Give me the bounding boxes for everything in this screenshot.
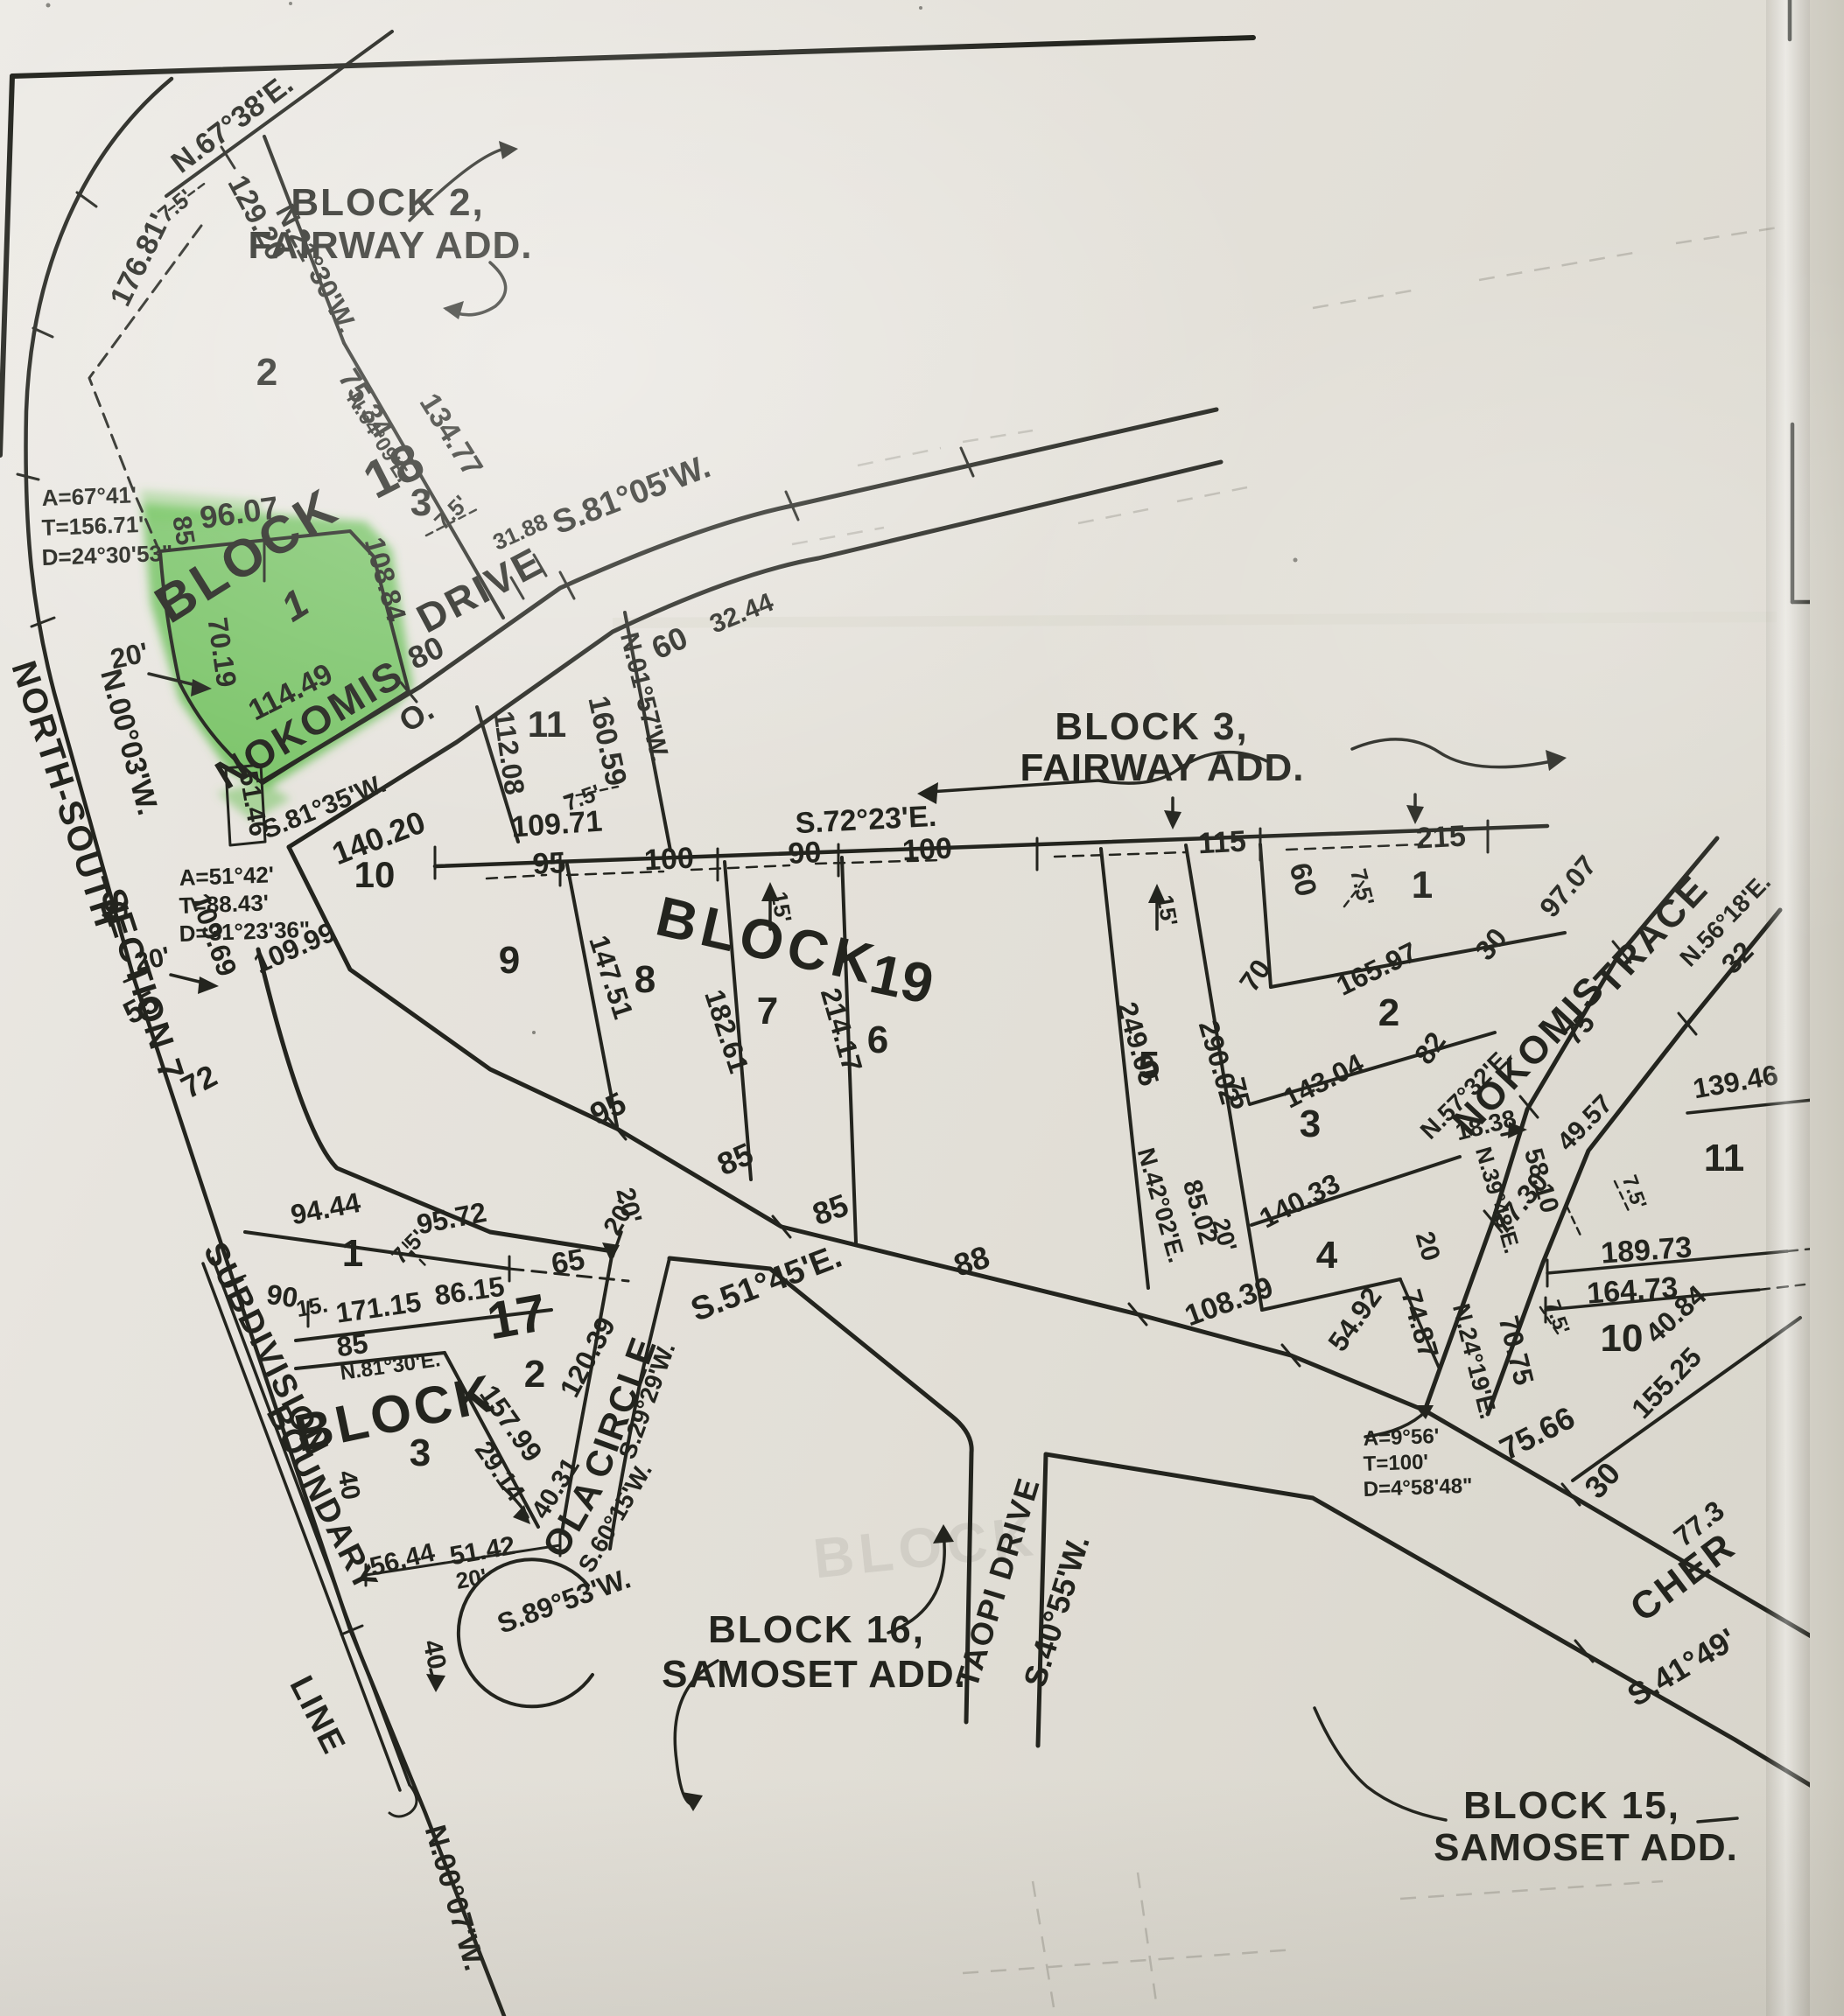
adjacent-page-border-fragments <box>1790 0 1844 1519</box>
lot1-number-b17: 1 <box>342 1232 363 1275</box>
dim-7-5-d: 7.5' <box>1345 866 1379 908</box>
lot11-number-east: 11 <box>1704 1137 1745 1179</box>
lot10-number-b19w: 10 <box>354 854 396 895</box>
dim-214-17: 214.17 <box>815 984 869 1075</box>
dim-109-71: 109.71 <box>510 804 603 843</box>
dim-139-46: 139.46 <box>1691 1059 1781 1104</box>
dim-160-59: 160.59 <box>581 693 633 789</box>
dim-94-44: 94.44 <box>288 1186 363 1231</box>
dim-143-04: 143.04 <box>1278 1047 1369 1115</box>
bearing-s41-49: S.41°49' <box>1621 1620 1742 1713</box>
lot1-number-b19e: 1 <box>1412 864 1433 906</box>
dim-15ft-b: 15' <box>1152 893 1183 928</box>
dim-182-61: 182.61 <box>698 985 754 1076</box>
dim-140-33: 140.33 <box>1254 1167 1345 1235</box>
map-labels: N.67°38'E.176.81'7.5'129.20N.21°30'W.2BL… <box>4 67 1780 1975</box>
block2-title-line1: BLOCK 2, <box>291 181 484 224</box>
block2-title-line2: FAIRWAY ADD. <box>249 224 533 267</box>
dim-171-15: 171.15 <box>334 1285 424 1328</box>
dim-20-f: 20' <box>454 1563 489 1594</box>
bearing-n00-07-w: N.00°07'W. <box>418 1822 492 1975</box>
dim-189-73: 189.73 <box>1600 1230 1693 1270</box>
dim-95-b: 95 <box>585 1085 632 1132</box>
dim-60-b: 60 <box>1283 859 1323 899</box>
boundary-word3: LINE <box>283 1670 353 1760</box>
lot3-number-b18: 3 <box>410 481 431 524</box>
dim-115: 115 <box>1197 825 1247 861</box>
bearing-s89-53-w: S.89°53'W. <box>493 1563 635 1640</box>
lot6-number: 6 <box>867 1018 888 1061</box>
lot3-number-b19e: 3 <box>1300 1102 1321 1145</box>
lot10-number-east: 10 <box>1601 1317 1644 1360</box>
street-s51-45-e: S.51°45'E. <box>686 1238 847 1329</box>
curve-d24: D=24°30'53" <box>41 540 173 570</box>
block16-title-line1: BLOCK 16, <box>708 1608 925 1651</box>
dim-65: 65 <box>549 1242 587 1281</box>
lot9-number: 9 <box>499 939 520 982</box>
dim-7-5-f: 7.5' <box>1540 1297 1574 1337</box>
bearing-n24-19-e: N.24°19'E. <box>1448 1301 1503 1422</box>
lot2-number-b17: 2 <box>524 1353 545 1396</box>
block3-title-line1: BLOCK 3, <box>1055 705 1248 748</box>
dim-215: 215 <box>1415 820 1467 856</box>
lot8-number: 8 <box>635 958 656 1001</box>
dim-100-a: 100 <box>643 842 695 878</box>
block16-title-line2: SAMOSET ADD. <box>662 1653 966 1696</box>
block17-number: 17 <box>483 1283 550 1351</box>
street-drive: DRIVE <box>410 537 551 641</box>
block3-title-line2: FAIRWAY ADD. <box>1020 746 1305 789</box>
dim-7-5-e: 7.5' <box>1617 1172 1651 1212</box>
block19-number: 19 <box>865 941 939 1016</box>
dim-32-44: 32.44 <box>705 588 777 640</box>
dim-97-07: 97.07 <box>1533 850 1602 923</box>
dim-108-39: 108.39 <box>1181 1270 1278 1333</box>
dim-90: 90 <box>788 836 823 871</box>
block15-title-line1: BLOCK 15, <box>1463 1784 1680 1827</box>
lot3-number-b17: 3 <box>410 1431 431 1474</box>
curve-t100: T=100' <box>1363 1450 1428 1476</box>
dim-147-51: 147.51 <box>583 931 639 1022</box>
block15-title-line2: SAMOSET ADD. <box>1434 1826 1738 1869</box>
dim-20ft-d: 20' <box>1207 1215 1242 1255</box>
lot4-number-b19e: 4 <box>1316 1234 1338 1277</box>
dim-40-radius: 40 <box>417 1637 452 1672</box>
curve-d4: D=4°58'48" <box>1363 1474 1473 1501</box>
lot5-number: 5 <box>1139 1044 1160 1087</box>
bearing-n00-03-w: N.00°03'W. <box>94 666 165 819</box>
curve-t156: T=156.71' <box>41 511 144 541</box>
bearing-s81-05-w: S.81°05'W. <box>548 448 715 542</box>
dim-85-b: 85 <box>808 1186 853 1232</box>
plat-map-sheet: N.67°38'E.176.81'7.5'129.20N.21°30'W.2BL… <box>0 0 1844 2016</box>
dim-165-97: 165.97 <box>1331 935 1422 1001</box>
paper-crease-lines <box>613 617 1777 623</box>
lot2-number-b18: 2 <box>256 351 277 394</box>
bleedthrough-dashes <box>792 227 1778 2012</box>
dim-7-5-b: 7.5' <box>429 490 473 535</box>
dim-75-66: 75.66 <box>1494 1399 1581 1466</box>
dim-20-e: 20 <box>1410 1228 1446 1264</box>
dim-75-a: 75 <box>1219 1074 1258 1112</box>
curve-a9: A=9°56' <box>1363 1424 1440 1451</box>
lot11-number-b19w: 11 <box>528 703 566 745</box>
dim-112-08: 112.08 <box>487 709 530 796</box>
curve-a51: A=51°42' <box>179 861 274 891</box>
dim-82: 82 <box>1408 1026 1452 1070</box>
lot2-number-b19e: 2 <box>1378 991 1399 1034</box>
map-border <box>0 38 1253 455</box>
dim-30-b: 30 <box>1577 1455 1627 1505</box>
dim-74-87: 74.87 <box>1395 1286 1445 1362</box>
dim-20ft-b: 20' <box>132 941 172 977</box>
lot7-number: 7 <box>757 990 778 1032</box>
dim-100-b: 100 <box>901 832 953 868</box>
plat-map-drawing: N.67°38'E.176.81'7.5'129.20N.21°30'W.2BL… <box>0 0 1844 2016</box>
dim-95-a: 95 <box>532 846 567 881</box>
dim-30-a: 30 <box>1469 922 1512 966</box>
dim-15-b17: 15. <box>294 1291 330 1322</box>
curve-a67: A=67°41' <box>41 481 137 511</box>
